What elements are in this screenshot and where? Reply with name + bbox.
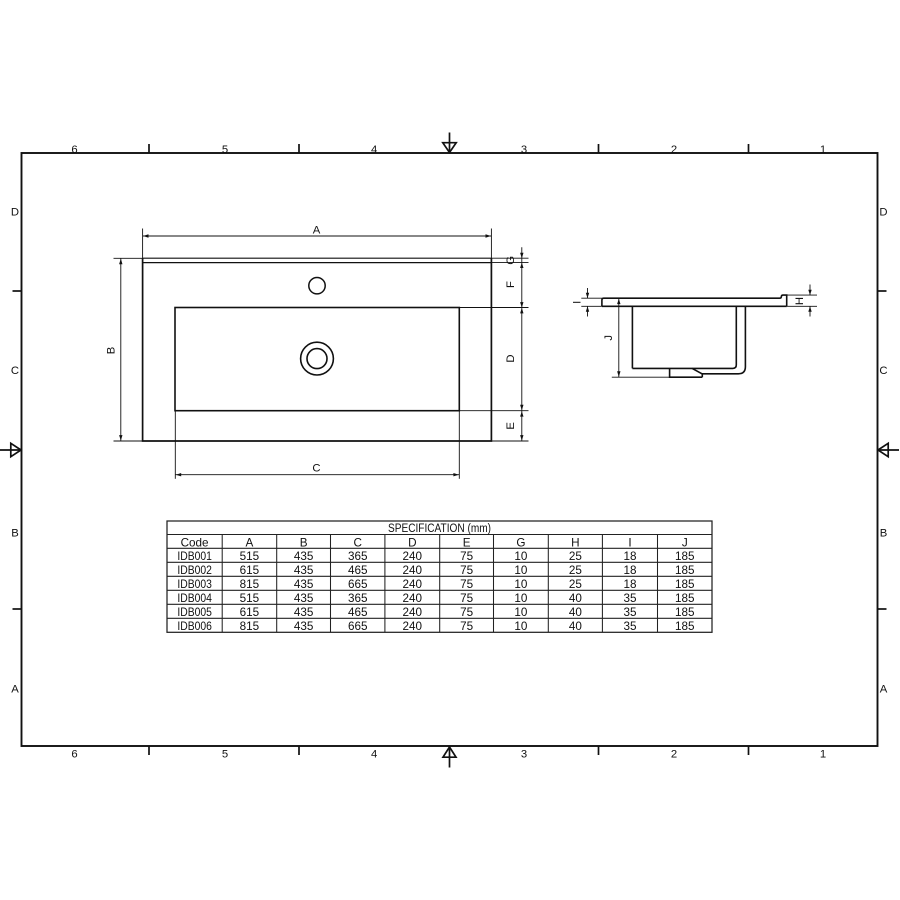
svg-text:4: 4	[371, 144, 377, 156]
svg-text:435: 435	[294, 606, 314, 619]
svg-text:240: 240	[403, 592, 423, 605]
svg-text:435: 435	[294, 550, 314, 563]
svg-text:Code: Code	[181, 536, 209, 549]
svg-text:615: 615	[240, 564, 260, 577]
svg-text:35: 35	[623, 620, 637, 633]
svg-text:185: 185	[675, 550, 695, 563]
svg-text:35: 35	[623, 592, 637, 605]
svg-text:D: D	[408, 536, 416, 549]
svg-text:IDB005: IDB005	[177, 606, 212, 619]
svg-text:E: E	[505, 422, 517, 430]
svg-text:B: B	[880, 528, 888, 540]
svg-text:B: B	[105, 347, 117, 355]
svg-text:185: 185	[675, 620, 695, 633]
svg-text:IDB002: IDB002	[177, 564, 212, 577]
svg-text:6: 6	[71, 144, 77, 156]
svg-text:H: H	[794, 297, 806, 305]
svg-text:2: 2	[671, 749, 677, 761]
svg-text:365: 365	[348, 550, 368, 563]
svg-text:J: J	[603, 335, 615, 341]
svg-text:G: G	[516, 536, 525, 549]
svg-text:185: 185	[675, 606, 695, 619]
svg-text:435: 435	[294, 592, 314, 605]
svg-text:10: 10	[514, 564, 528, 577]
svg-text:665: 665	[348, 578, 368, 591]
svg-text:IDB003: IDB003	[177, 578, 212, 591]
svg-text:10: 10	[514, 606, 528, 619]
svg-text:240: 240	[403, 564, 423, 577]
svg-text:3: 3	[521, 749, 527, 761]
svg-text:18: 18	[623, 578, 636, 591]
svg-text:IDB006: IDB006	[177, 620, 212, 633]
svg-text:IDB004: IDB004	[177, 592, 212, 605]
svg-text:C: C	[312, 463, 320, 475]
svg-text:1: 1	[820, 749, 826, 761]
svg-text:6: 6	[71, 749, 77, 761]
svg-text:J: J	[682, 536, 688, 549]
svg-text:A: A	[246, 536, 254, 549]
svg-text:35: 35	[623, 606, 637, 619]
svg-text:665: 665	[348, 620, 368, 633]
svg-text:515: 515	[240, 550, 260, 563]
svg-text:A: A	[11, 684, 19, 696]
svg-text:10: 10	[514, 620, 528, 633]
svg-text:1: 1	[820, 144, 826, 156]
svg-text:D: D	[879, 207, 887, 219]
svg-text:IDB001: IDB001	[177, 550, 212, 563]
svg-text:A: A	[313, 225, 321, 237]
svg-text:18: 18	[623, 564, 636, 577]
svg-text:75: 75	[460, 550, 474, 563]
svg-text:75: 75	[460, 592, 474, 605]
svg-text:I: I	[628, 536, 631, 549]
svg-text:435: 435	[294, 578, 314, 591]
svg-text:5: 5	[222, 144, 228, 156]
svg-text:3: 3	[521, 144, 527, 156]
svg-text:G: G	[505, 256, 517, 265]
svg-text:75: 75	[460, 620, 474, 633]
svg-text:240: 240	[403, 550, 423, 563]
svg-text:465: 465	[348, 564, 368, 577]
svg-text:25: 25	[569, 578, 583, 591]
svg-text:D: D	[505, 354, 517, 362]
svg-text:18: 18	[623, 550, 636, 563]
svg-text:240: 240	[403, 620, 423, 633]
svg-text:240: 240	[403, 578, 423, 591]
svg-text:75: 75	[460, 606, 474, 619]
svg-text:C: C	[11, 365, 19, 377]
svg-text:185: 185	[675, 564, 695, 577]
svg-text:40: 40	[569, 606, 583, 619]
svg-text:5: 5	[222, 749, 228, 761]
svg-text:75: 75	[460, 578, 474, 591]
svg-text:B: B	[300, 536, 308, 549]
svg-text:435: 435	[294, 564, 314, 577]
svg-text:240: 240	[403, 606, 423, 619]
svg-text:40: 40	[569, 592, 583, 605]
svg-text:10: 10	[514, 592, 528, 605]
svg-text:SPECIFICATION (mm): SPECIFICATION (mm)	[388, 523, 491, 535]
svg-text:A: A	[880, 684, 888, 696]
svg-text:C: C	[353, 536, 361, 549]
svg-text:615: 615	[240, 606, 260, 619]
svg-text:40: 40	[569, 620, 583, 633]
svg-text:E: E	[463, 536, 471, 549]
svg-text:10: 10	[514, 550, 528, 563]
svg-text:F: F	[505, 281, 517, 288]
svg-text:815: 815	[240, 620, 260, 633]
svg-text:75: 75	[460, 564, 474, 577]
svg-text:465: 465	[348, 606, 368, 619]
svg-text:4: 4	[371, 749, 377, 761]
svg-text:10: 10	[514, 578, 528, 591]
svg-text:25: 25	[569, 550, 583, 563]
svg-text:C: C	[879, 365, 887, 377]
svg-text:B: B	[11, 528, 19, 540]
svg-text:815: 815	[240, 578, 260, 591]
svg-text:I: I	[571, 301, 583, 304]
svg-text:25: 25	[569, 564, 583, 577]
svg-text:185: 185	[675, 578, 695, 591]
svg-text:D: D	[11, 207, 19, 219]
svg-text:365: 365	[348, 592, 368, 605]
svg-text:185: 185	[675, 592, 695, 605]
svg-text:435: 435	[294, 620, 314, 633]
svg-text:515: 515	[240, 592, 260, 605]
svg-text:2: 2	[671, 144, 677, 156]
svg-text:H: H	[571, 536, 579, 549]
